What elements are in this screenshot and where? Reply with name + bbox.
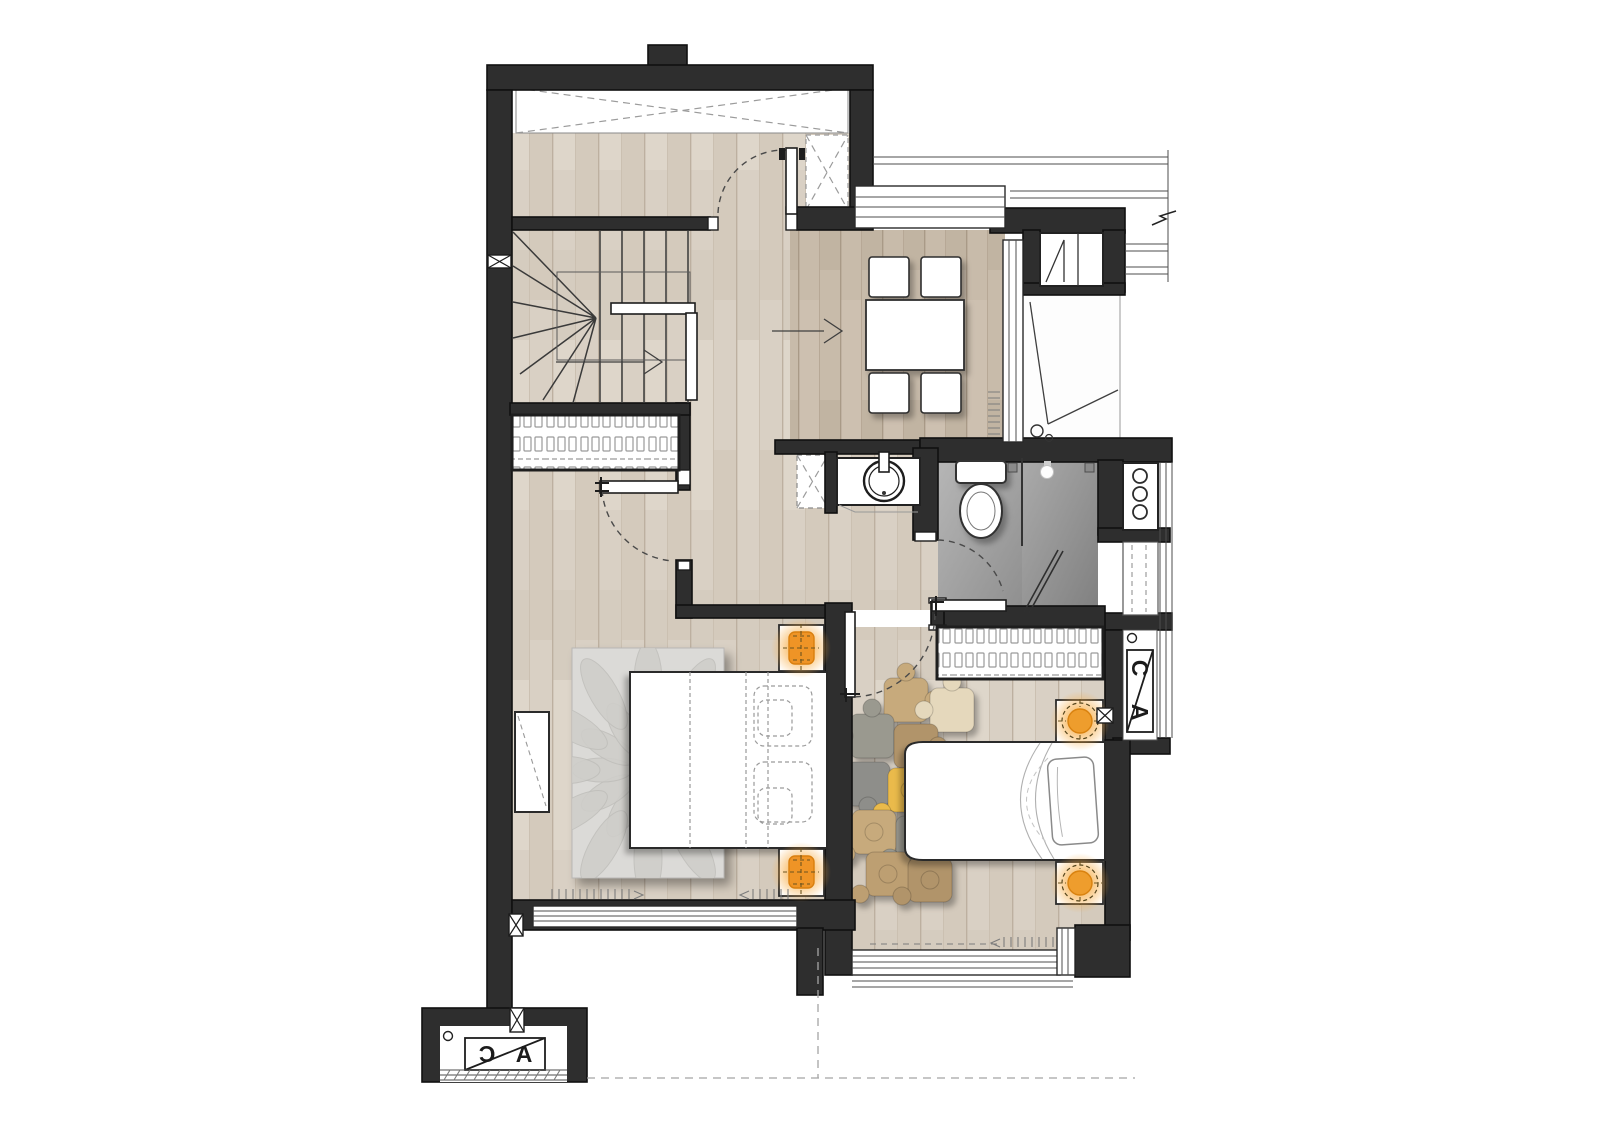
wall-bath-top <box>920 438 1172 462</box>
side-cabinet <box>515 712 549 812</box>
burner-icon <box>1133 469 1147 483</box>
marker-dot-icon <box>444 1032 453 1041</box>
bowtie-icon <box>510 1008 524 1032</box>
hall-wardrobe <box>512 415 679 470</box>
stair-floor <box>512 228 690 403</box>
chair <box>869 257 909 297</box>
section-letter-c: C <box>479 1041 496 1067</box>
burner-icon <box>1133 505 1147 519</box>
hob-counter <box>1123 463 1158 530</box>
floor-plan-canvas: C A C A <box>0 0 1600 1131</box>
wall-pier-down <box>797 928 823 995</box>
wall-wardrobe-top <box>510 403 690 415</box>
stair-handrail <box>686 313 697 400</box>
wall-cap <box>678 561 690 570</box>
chair <box>921 257 961 297</box>
wall-cap <box>678 470 690 485</box>
toilet <box>956 461 1006 538</box>
bowtie-icon <box>1097 708 1113 723</box>
chair <box>869 373 909 413</box>
wall-dining-bottom <box>775 440 920 454</box>
dining-side-window <box>1003 240 1023 442</box>
wall-stairs-top <box>512 217 710 230</box>
double-bed <box>630 672 827 848</box>
drain-icon <box>1008 463 1017 472</box>
bowtie-icon <box>488 255 511 268</box>
wall-hob-block <box>1098 460 1123 535</box>
burner-icon <box>1133 487 1147 501</box>
shower-floor <box>1022 455 1098 612</box>
bowtie-icon <box>509 914 523 936</box>
chair <box>921 373 961 413</box>
wall-cap <box>915 532 936 541</box>
wall-top <box>487 65 873 90</box>
drain-icon <box>1085 463 1094 472</box>
section-letter-c: C <box>1127 660 1153 677</box>
section-letter-a: A <box>1127 704 1153 721</box>
pillow <box>1047 757 1099 846</box>
service-balcony-floor <box>1023 292 1120 442</box>
bedroom2-wardrobe <box>937 627 1103 679</box>
washbasin <box>837 452 920 512</box>
wall-bedroom2-se-chunk <box>1075 925 1130 977</box>
glow-lamp-icon <box>771 842 831 902</box>
marker-dot-icon <box>1128 634 1137 643</box>
wall-bedroom1-top-band <box>676 605 825 618</box>
single-bed <box>905 742 1105 860</box>
bedroom1-window <box>533 906 797 927</box>
ac-platform <box>1040 233 1103 286</box>
floor-plan-drawing: C A C A <box>0 0 1600 1131</box>
section-letter-a: A <box>516 1041 533 1067</box>
base-cabinet <box>1123 542 1158 615</box>
dining-table <box>866 300 964 370</box>
stair-handrail <box>611 303 695 314</box>
wall-basin-stub <box>825 452 837 513</box>
wall-top-stub <box>648 45 687 67</box>
wall-bedroom2-east <box>1105 740 1130 940</box>
glow-lamp-icon <box>1050 853 1110 913</box>
faucet-icon <box>879 452 889 472</box>
section-marker-bottom: C A <box>440 1026 567 1082</box>
section-marker-right: C A <box>1123 630 1157 740</box>
glow-lamp-icon <box>771 618 831 678</box>
wall-cap <box>708 217 718 230</box>
wall-left <box>487 90 512 1010</box>
dining-top-window <box>855 186 1005 228</box>
